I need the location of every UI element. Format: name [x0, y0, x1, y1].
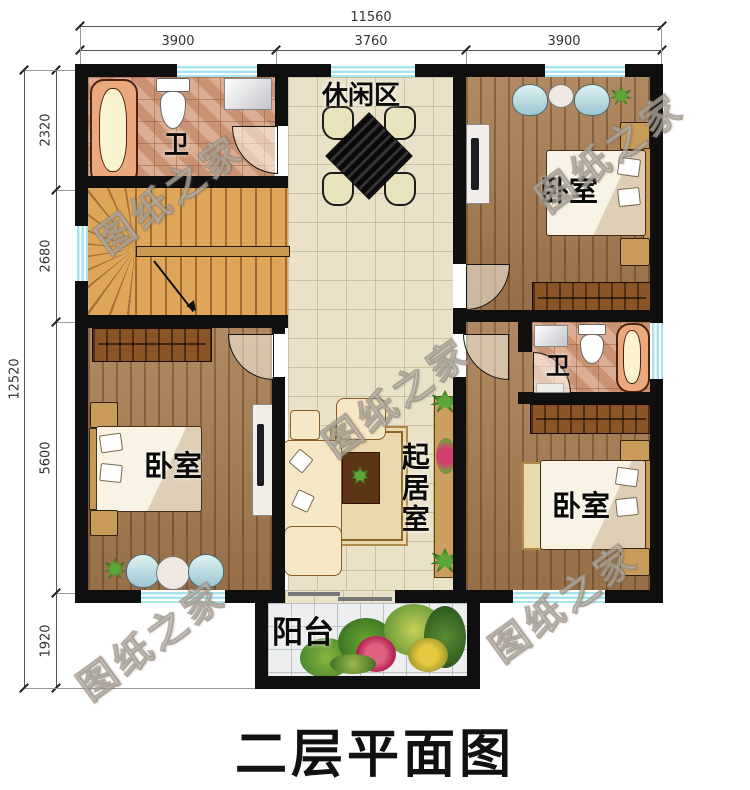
interior-wall	[453, 310, 663, 322]
room-label-leisure: 休闲区	[322, 81, 400, 110]
dim-left-segment-2: 2680	[39, 239, 54, 272]
armchair	[126, 554, 160, 588]
sliding-door-panel	[288, 592, 340, 596]
toilet-icon	[156, 78, 190, 92]
pillow	[615, 497, 639, 517]
wardrobe	[92, 328, 212, 362]
dim-extension	[25, 70, 75, 71]
dim-extension	[25, 688, 255, 689]
page-title: 二层平面图	[0, 712, 750, 787]
balcony-flowers	[408, 638, 448, 672]
interior-wall	[272, 315, 285, 334]
dim-extension	[661, 27, 662, 64]
pillow	[99, 433, 123, 454]
bedside-rug	[522, 462, 542, 550]
outer-wall-left	[75, 64, 88, 603]
pillow	[617, 187, 641, 207]
wardrobe-rail	[538, 297, 647, 299]
dim-extension	[57, 593, 75, 594]
room-label-bath-right: 卫	[546, 354, 570, 380]
bathtub-icon	[90, 79, 138, 185]
dim-total-width: 11560	[331, 10, 411, 25]
floor-plan-canvas: 11560 3900 3760 3900 12520 2320 2680 560…	[0, 0, 750, 790]
interior-wall	[272, 377, 285, 590]
side-table	[548, 84, 574, 108]
dim-extension	[466, 51, 467, 64]
dim-top-segment-2: 3760	[331, 34, 411, 49]
stair-handrail	[136, 246, 290, 257]
dim-extension	[276, 51, 277, 64]
window	[176, 64, 258, 77]
room-label-bedroom-bottom-left: 卧室	[144, 452, 202, 484]
dim-top-segment-1: 3900	[138, 34, 218, 49]
dim-line-top-segments	[80, 50, 662, 51]
sliding-door-panel	[338, 597, 392, 601]
dim-extension	[57, 322, 75, 323]
room-label-living: 起居室	[398, 442, 429, 535]
sink-icon	[224, 78, 272, 110]
pillow	[615, 467, 639, 488]
dim-extension	[80, 27, 81, 64]
bathtub-basin	[99, 88, 127, 172]
armchair	[574, 84, 610, 116]
window	[330, 64, 416, 77]
sink-icon	[534, 325, 568, 347]
balcony-plants	[330, 654, 376, 674]
dim-left-segment-4: 1920	[39, 624, 54, 657]
armchair	[512, 84, 548, 116]
nightstand	[90, 510, 118, 536]
bathtub-icon	[616, 323, 650, 393]
room-label-balcony: 阳台	[272, 616, 334, 650]
interior-wall	[453, 377, 466, 590]
dim-left-segment-1: 2320	[39, 113, 54, 146]
chaise	[284, 526, 342, 576]
room-label-bedroom-bottom-right: 卧室	[552, 492, 610, 524]
bathtub-basin	[623, 330, 641, 384]
dim-top-segment-3: 3900	[524, 34, 604, 49]
dim-line-left-segments	[56, 70, 57, 688]
dim-line-top-total	[80, 26, 662, 27]
balcony-wall-bottom	[255, 676, 480, 689]
wardrobe-rail	[98, 343, 207, 345]
window	[544, 64, 626, 77]
wardrobe-rail	[536, 418, 646, 420]
window	[650, 322, 663, 380]
dim-total-height: 12520	[8, 358, 23, 399]
nightstand	[620, 238, 650, 266]
tv-icon	[257, 424, 264, 486]
tv-icon	[471, 138, 479, 190]
pillow	[99, 463, 123, 483]
dim-line-left-total	[24, 70, 25, 688]
interior-wall	[518, 322, 532, 352]
interior-wall	[453, 64, 466, 264]
wardrobe	[530, 404, 652, 434]
dim-left-segment-3: 5600	[39, 441, 54, 474]
interior-wall	[75, 315, 288, 328]
window	[75, 225, 88, 282]
nightstand	[90, 402, 118, 428]
dim-extension	[57, 190, 75, 191]
